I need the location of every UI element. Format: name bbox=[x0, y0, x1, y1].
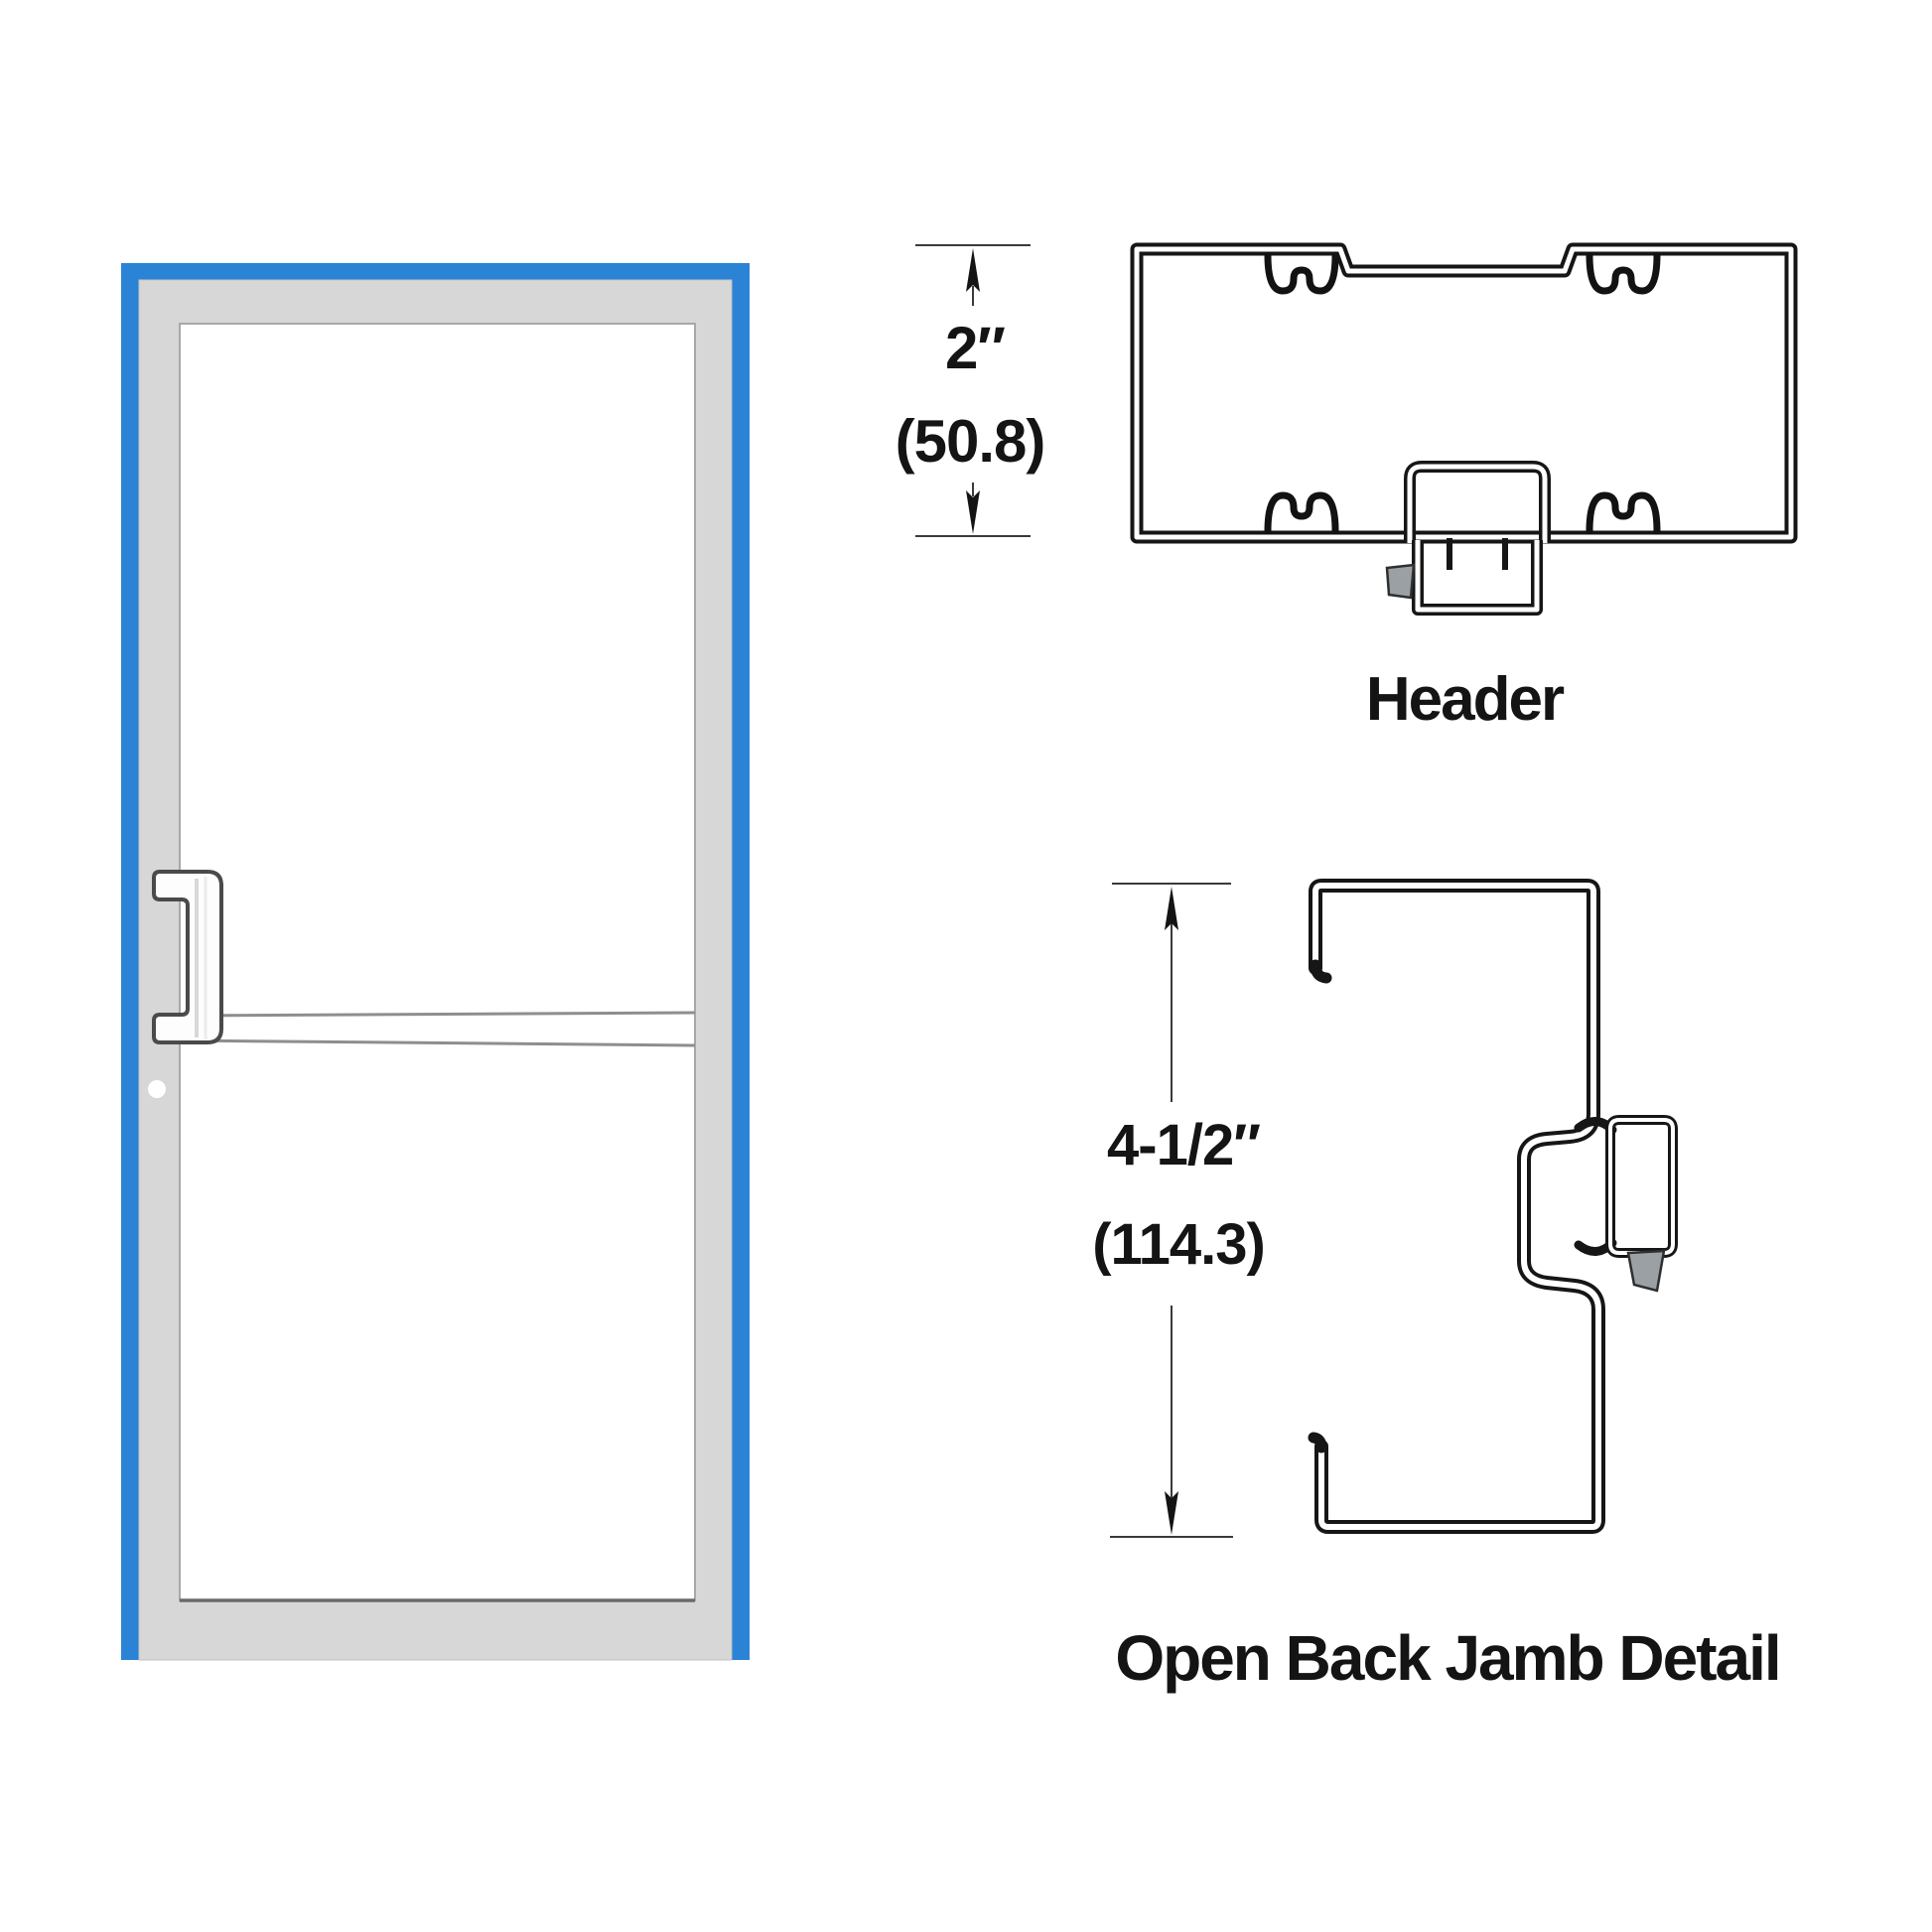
glazing-hook bbox=[1315, 965, 1326, 978]
arrow-down-icon bbox=[966, 490, 980, 534]
door-glass bbox=[180, 324, 695, 1600]
header-extrusion-profile bbox=[1137, 249, 1791, 610]
header-dimension bbox=[915, 245, 1031, 536]
vinyl-wedge bbox=[1628, 1251, 1664, 1291]
jamb-dimension-metric: (114.3) bbox=[1067, 1202, 1290, 1286]
door-illustration bbox=[104, 213, 755, 1663]
jamb-caption: Open Back Jamb Detail bbox=[1097, 1620, 1798, 1696]
arrow-up-icon bbox=[966, 248, 980, 292]
door-stop-clip bbox=[1579, 1120, 1673, 1291]
vinyl-wedge bbox=[1387, 565, 1414, 598]
header-dimension-imperial: 2″ bbox=[894, 306, 1056, 389]
header-caption: Header bbox=[1266, 663, 1663, 735]
product-diagram: 2″ (50.8) Header 4-1/2″ (114.3) Open Bac… bbox=[0, 0, 1932, 1932]
jamb-extrusion-profile bbox=[1313, 886, 1673, 1527]
lock-indicator bbox=[148, 1080, 166, 1098]
screw-spline bbox=[1268, 255, 1657, 531]
header-dimension-metric: (50.8) bbox=[869, 399, 1071, 483]
jamb-dimension-imperial: 4-1/2″ bbox=[1072, 1103, 1295, 1186]
